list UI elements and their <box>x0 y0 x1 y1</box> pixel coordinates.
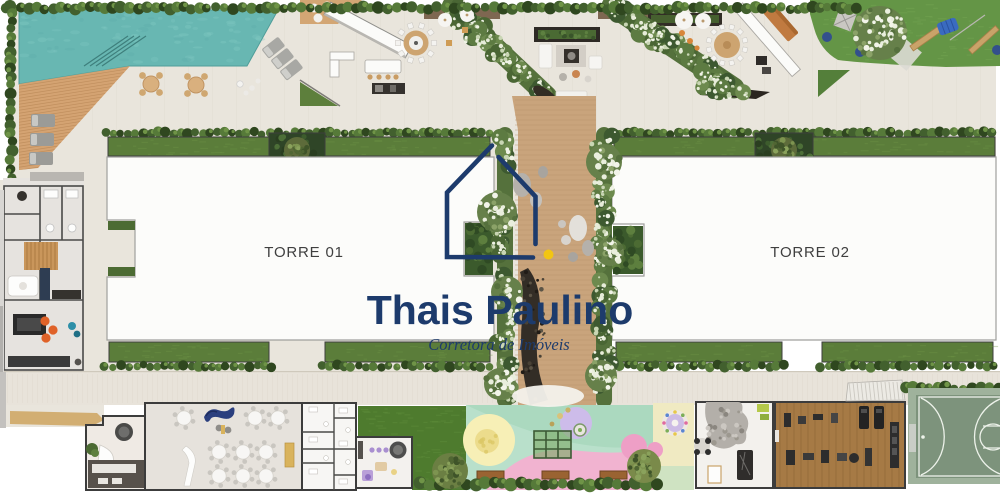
svg-text:TORRE 02: TORRE 02 <box>770 244 849 261</box>
svg-text:Thais Paulino: Thais Paulino <box>367 287 634 333</box>
svg-text:TORRE 01: TORRE 01 <box>264 244 343 261</box>
svg-text:Corretora de Imóveis: Corretora de Imóveis <box>428 335 569 354</box>
